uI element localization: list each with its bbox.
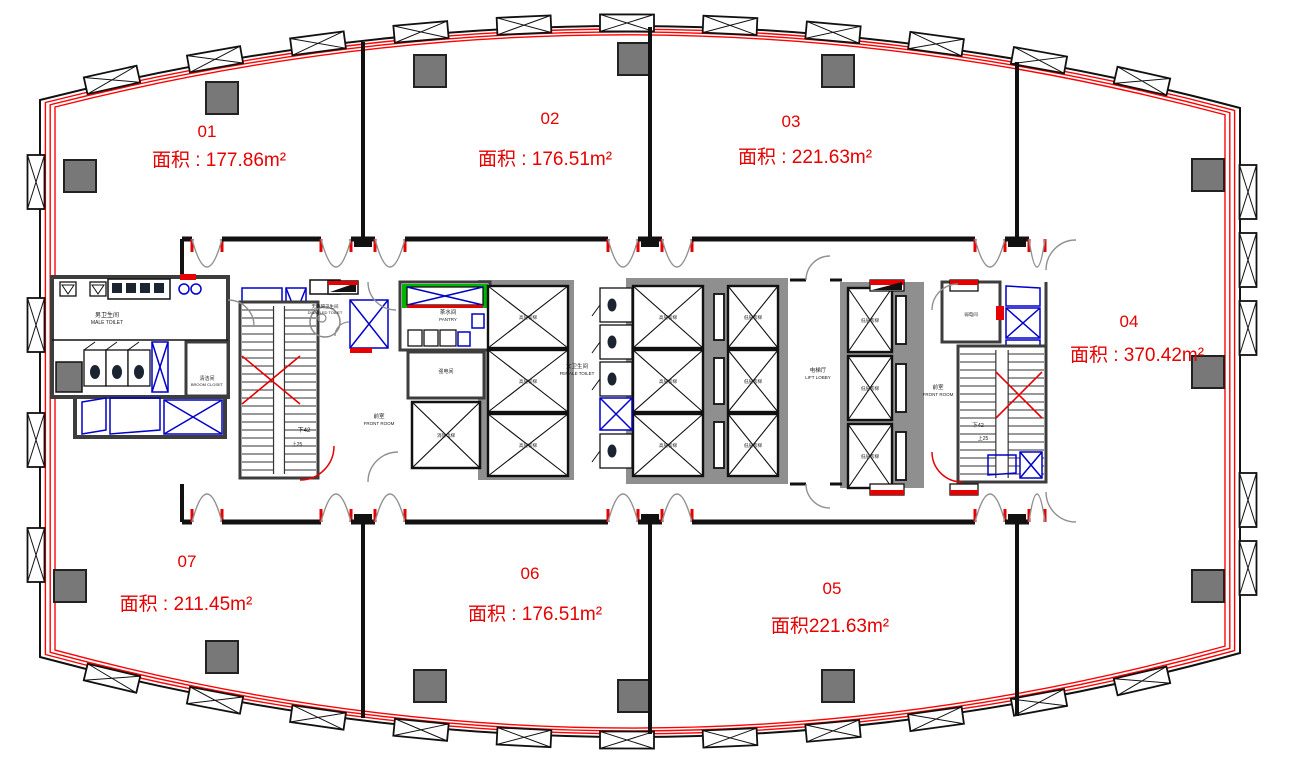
column xyxy=(414,55,446,87)
red-damper xyxy=(996,306,1004,320)
lift-door-pocket xyxy=(896,432,906,480)
lift-label: 低层客梯 xyxy=(744,442,762,449)
lift-label: 高层客梯 xyxy=(659,442,677,449)
unit-05-number: 05 xyxy=(823,579,842,598)
stair1-up-label: 上25 xyxy=(292,441,303,448)
front-room-2-label-en: FRONT ROOM xyxy=(923,392,954,397)
unit-04-number: 04 xyxy=(1120,312,1139,331)
lift-lobby-label-en: LIFT LOBBY xyxy=(805,375,830,380)
column xyxy=(206,641,238,673)
red-strip xyxy=(407,305,483,308)
column xyxy=(414,670,446,702)
wall-stub xyxy=(1008,239,1026,247)
lift-door-pocket xyxy=(896,364,906,412)
facade-mullion xyxy=(497,727,552,747)
facade-mullion xyxy=(1240,233,1257,287)
stair1-down-label: 下42 xyxy=(298,427,311,434)
stair2-down-label: 下42 xyxy=(972,422,984,429)
front-room-2-label-cn: 前室 xyxy=(932,383,944,391)
lift-door-pocket xyxy=(714,358,724,404)
fixture xyxy=(408,330,422,346)
strong-electric-room xyxy=(408,352,484,398)
column xyxy=(1192,159,1224,191)
lift-label: 低层客梯 xyxy=(861,317,879,324)
red-strip xyxy=(328,281,358,285)
facade-mullion xyxy=(703,16,758,35)
facade-mullion xyxy=(28,155,45,209)
facade-mullion xyxy=(1240,165,1257,219)
unit-01-number: 01 xyxy=(198,122,217,141)
lift-label: 低层客梯 xyxy=(861,453,879,460)
fixture xyxy=(424,330,438,346)
wall-stub xyxy=(1008,514,1026,522)
column xyxy=(618,680,650,712)
lift-lobby-label-cn: 电梯厅 xyxy=(810,366,827,374)
wall-stub xyxy=(354,514,372,522)
toilet xyxy=(112,365,122,379)
lift-door-pocket xyxy=(714,294,724,340)
facade-mullion xyxy=(28,413,45,467)
lift-label: 低层客梯 xyxy=(861,385,879,392)
column xyxy=(206,82,238,114)
unit-05-area: 面积221.63m² xyxy=(771,615,889,637)
green-counter-end xyxy=(402,284,407,308)
toilet xyxy=(134,365,144,379)
facade-mullion xyxy=(600,731,654,748)
unit-01-area: 面积 : 177.86m² xyxy=(152,149,286,171)
facade-mullion xyxy=(805,21,860,43)
stair2-up-label: 上25 xyxy=(978,435,989,442)
broom-closet-label-en: BROOM CLOSET xyxy=(191,382,224,387)
stair-1 xyxy=(240,302,318,478)
floor-plan-drawing: 男卫生间 MALE TOILET 清洁间 BROOM CLOSET 无障碍卫生间… xyxy=(0,0,1289,759)
broom-closet-label-cn: 清洁间 xyxy=(199,375,214,382)
column xyxy=(64,160,96,192)
facade-mullion xyxy=(703,728,758,747)
column xyxy=(1192,570,1224,602)
broom-closet-room xyxy=(186,342,228,396)
facade-mullion xyxy=(600,14,654,31)
facade-mullion xyxy=(1240,541,1257,595)
lift-label: 高层客梯 xyxy=(659,314,677,321)
floor-plan-canvas: 男卫生间 MALE TOILET 清洁间 BROOM CLOSET 无障碍卫生间… xyxy=(0,0,1289,759)
facade-mullion xyxy=(28,528,45,582)
lift-label: 高层客梯 xyxy=(519,442,537,449)
lift-door-pocket xyxy=(714,422,724,468)
sink xyxy=(140,283,150,293)
front-room-1-label-cn: 前室 xyxy=(373,412,385,420)
facade-mullion xyxy=(1240,473,1257,527)
fixture xyxy=(440,330,456,346)
column xyxy=(54,570,86,602)
female-toilet-label-en: FEMALE TOILET xyxy=(560,371,595,376)
toilet xyxy=(608,299,617,312)
unit-06-number: 06 xyxy=(521,564,540,583)
male-toilet: 男卫生间 MALE TOILET 清洁间 BROOM CLOSET xyxy=(52,274,228,437)
lift-label: 高层客梯 xyxy=(519,314,537,321)
unit-02-number: 02 xyxy=(541,109,560,128)
pantry-label-cn: 茶水间 xyxy=(440,308,457,316)
unit-06-area: 面积 : 176.51m² xyxy=(468,603,602,625)
disabled-toilet-label-cn: 无障碍卫生间 xyxy=(312,303,339,310)
pantry-electric-block: 茶水间 PANTRY 强电间 消防电梯 xyxy=(400,282,490,468)
column xyxy=(618,43,650,75)
front-room-1-label-en: FRONT ROOM xyxy=(364,421,395,426)
facade-mullion xyxy=(28,298,45,352)
facade-mullion xyxy=(497,15,552,34)
red-strip xyxy=(870,490,904,495)
fire-lift-label: 消防电梯 xyxy=(437,432,455,439)
wall-stub xyxy=(641,514,659,522)
lift-label: 高层客梯 xyxy=(519,378,537,385)
toilet xyxy=(90,365,100,379)
male-toilet-label-en: MALE TOILET xyxy=(91,320,123,326)
strong-electric-label: 强电间 xyxy=(438,368,453,375)
unit-03-number: 03 xyxy=(782,112,801,131)
weak-electric-label: 弱电间 xyxy=(964,311,978,318)
unit-07-number: 07 xyxy=(178,552,197,571)
sink xyxy=(112,283,122,293)
wall-stub xyxy=(354,239,372,247)
unit-03-area: 面积 : 221.63m² xyxy=(738,146,872,168)
unit-02-area: 面积 : 176.51m² xyxy=(478,148,612,170)
wall-block xyxy=(56,362,82,392)
toilet xyxy=(608,445,617,458)
red-damper xyxy=(350,348,372,353)
unit-04-area: 面积 : 370.42m² xyxy=(1070,344,1204,366)
pantry-label-en: PANTRY xyxy=(439,317,457,322)
lift-label: 低层客梯 xyxy=(744,314,762,321)
lift-door-pocket xyxy=(896,296,906,344)
column xyxy=(822,55,854,87)
disabled-toilet-label-en: DISABLED TOILET xyxy=(308,310,343,315)
toilet xyxy=(608,336,617,349)
sink xyxy=(126,283,136,293)
lift-label: 低层客梯 xyxy=(744,378,762,385)
unit-07-area: 面积 : 211.45m² xyxy=(120,593,253,615)
female-toilet-label-cn: 女卫生间 xyxy=(566,362,588,370)
sink xyxy=(154,283,164,293)
red-jamb xyxy=(180,274,196,280)
lift-label: 高层客梯 xyxy=(659,378,677,385)
facade-mullion xyxy=(1240,301,1257,355)
wall-stub xyxy=(641,239,659,247)
facade-mullion xyxy=(393,21,448,43)
facade-mullion xyxy=(805,720,860,742)
toilet xyxy=(608,373,617,386)
column xyxy=(822,670,854,702)
male-toilet-label-cn: 男卫生间 xyxy=(95,311,119,319)
red-strip xyxy=(950,490,978,495)
